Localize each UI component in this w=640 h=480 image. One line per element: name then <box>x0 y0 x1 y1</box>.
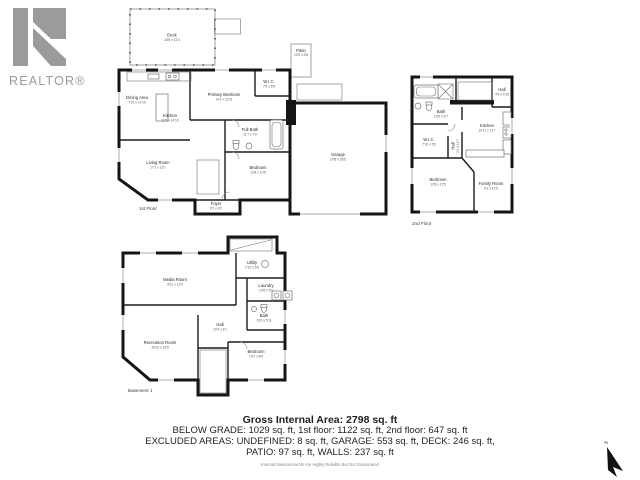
area-line-2: EXCLUDED AREAS: UNDEFINED: 8 sq. ft, GAR… <box>0 437 640 448</box>
sink-icon <box>148 74 159 79</box>
room-dims: 7'6 x 5'6 <box>263 85 275 89</box>
room-dims: 7'10 x 5'5 <box>422 143 436 147</box>
room-dims: 11'5 x 14'10 <box>161 119 178 123</box>
room-label: W.I.C. <box>263 79 274 84</box>
room-label: Kitchen <box>480 123 495 128</box>
sink-icon <box>415 103 421 109</box>
fridge-icon <box>503 112 511 125</box>
room-label: Bath <box>437 109 446 114</box>
stove-icon <box>503 127 511 138</box>
first-floor-outer-walls <box>119 70 386 214</box>
realtor-logo: REALTOR® <box>9 8 86 88</box>
room-label: Family Room <box>479 181 504 186</box>
room-label: Laundry <box>258 283 274 288</box>
area-summary: Gross Internal Area: 2798 sq. ft BELOW G… <box>0 414 640 458</box>
floor-label-basement: Basement 1 <box>128 388 153 393</box>
second-floor-stairs <box>458 82 492 100</box>
room-label: Hall <box>216 322 223 327</box>
full-bath-fixtures <box>233 120 283 150</box>
first-floor-interior-walls <box>119 70 290 200</box>
first-floor-plan: Deck 18'6 x 12'4 Patio 10'0 x 5'8 Dining… <box>117 9 388 216</box>
dryer-icon <box>283 291 292 300</box>
room-dims: 12'8 x 11'5 <box>430 183 446 187</box>
washer-icon <box>272 291 281 300</box>
hall-vertical-label: Hall 3'1 x 11'7 <box>451 139 461 153</box>
second-kitchen-fixtures <box>466 112 511 157</box>
exterior-stairs <box>297 84 342 100</box>
room-dims: 16'10 x 16'5 <box>151 346 169 350</box>
room-dims: 10'6 x 5'0 <box>259 289 273 293</box>
room-dims: 10'6 x 5'11 <box>256 319 272 323</box>
room-label: Deck <box>167 33 177 38</box>
room-label: Recreation Room <box>144 340 177 345</box>
room-label: Primary Bedroom <box>208 92 241 97</box>
svg-text:3'1 x 11'7: 3'1 x 11'7 <box>456 139 460 153</box>
room-dims: 6'7 x 4'2 <box>210 207 222 211</box>
room-label: Bath <box>260 313 269 318</box>
basement-plan: Media Room 25'1 x 12'0 Utility 7'10 x 5'… <box>121 237 292 395</box>
room-dims: 12'8 x 10'5 <box>250 171 266 175</box>
room-dims: 14'2 x 8'9 <box>249 355 263 359</box>
floorplan-canvas: REALTOR® <box>0 0 640 480</box>
logo-wordmark: REALTOR® <box>9 74 86 88</box>
room-label: Living Room <box>146 160 170 165</box>
room-dims: 18'6 x 12'4 <box>164 38 180 42</box>
room-dims: 7'10 x 14'10 <box>128 101 146 105</box>
room-label: Utility <box>247 260 258 265</box>
room-label: W.I.C. <box>423 137 434 142</box>
room-dims: 13'6 x 5'7 <box>434 115 448 119</box>
room-label: Bedroom <box>430 177 448 182</box>
room-dims: 10'11 x 11'7 <box>478 129 495 133</box>
room-dims: 4'9 x 4'10 <box>495 93 509 97</box>
door-arc <box>240 342 247 349</box>
area-line-3: PATIO: 97 sq. ft, WALLS: 237 sq. ft <box>0 448 640 459</box>
room-dims: 11'7 x 7'0 <box>243 133 257 137</box>
second-bath-fixtures <box>414 85 438 111</box>
first-floor-windows <box>117 68 388 216</box>
room-label: Full Bath <box>242 127 259 132</box>
room-dims: 14'2 x 10'11 <box>215 98 232 102</box>
room-label: Kitchen <box>163 113 178 118</box>
sink-icon <box>251 306 256 311</box>
room-dims: 10'4 x 8'1 <box>213 328 227 332</box>
room-dims: 7'10 x 5'6 <box>245 266 259 270</box>
first-floor-stairs <box>197 160 219 194</box>
room-label: Dining Area <box>126 95 148 100</box>
room-dims: 20'8 x 26'5 <box>330 158 346 162</box>
room-label: Garage <box>331 152 346 157</box>
bar-counter-icon <box>466 150 504 157</box>
room-dims: 25'1 x 12'0 <box>167 283 183 287</box>
second-floor-plan: Bath 13'6 x 5'7 Hall 4'9 x 4'10 Kitchen … <box>410 75 514 226</box>
room-label: Foyer <box>211 201 222 206</box>
svg-text:Hall: Hall <box>451 142 456 149</box>
logo-bar <box>13 8 28 66</box>
room-dims: 17'1 x 13'1 <box>150 166 166 170</box>
floorplan-page: { "logo": { "brand": "REALTOR®" }, "floo… <box>0 0 640 480</box>
room-dims: 10'0 x 5'8 <box>294 53 308 57</box>
sink-icon <box>246 143 252 149</box>
room-label: Bedroom <box>250 165 268 170</box>
door-arc <box>448 124 455 131</box>
room-label: Media Room <box>163 277 187 282</box>
room-label: Hall <box>498 87 505 92</box>
room-label: Bedroom <box>248 349 266 354</box>
deck-stairs <box>215 19 241 34</box>
water-heater-icon <box>262 261 269 268</box>
closet-xbox <box>438 84 453 99</box>
floor-label-first: 1st Floor <box>139 206 157 211</box>
disclaimer-text: Internal Measurements Are Highly Reliabl… <box>261 462 379 467</box>
floor-label-second: 2nd Floor <box>412 221 432 226</box>
room-dims: 9'2 x 11'5 <box>484 187 498 191</box>
basement-stairs <box>200 350 226 393</box>
